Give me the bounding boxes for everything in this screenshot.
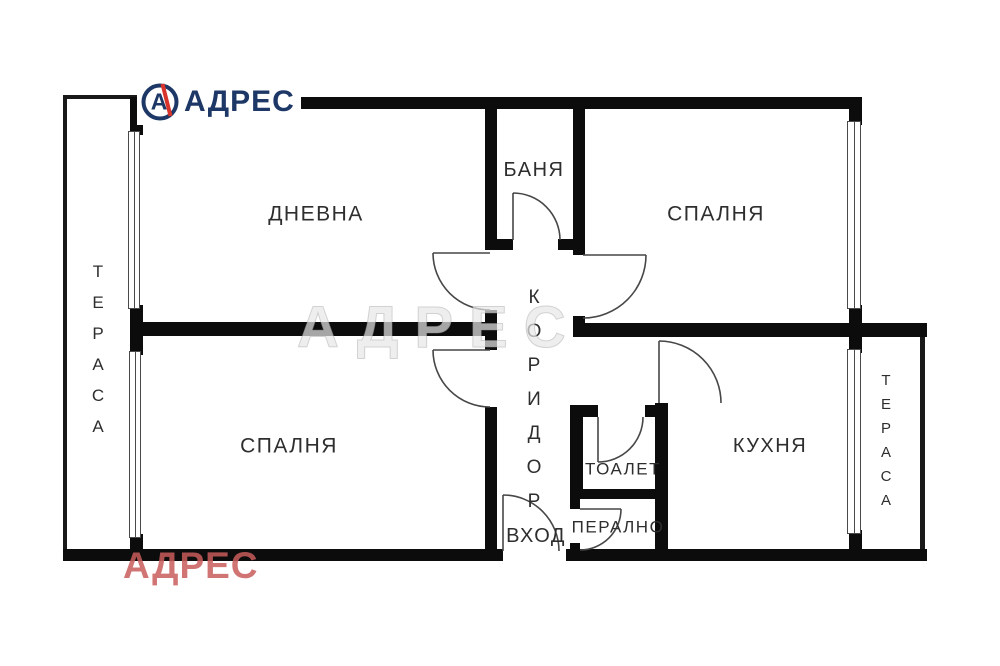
watermark-bottom-left: АДРЕС	[123, 545, 259, 587]
room-label-bathroom: БАНЯ	[504, 160, 565, 180]
room-label-living: ДНЕВНА	[268, 204, 364, 225]
room-label-entrance: ВХОД	[506, 526, 566, 546]
room-label-toilet: ТОАЛЕТ	[585, 461, 661, 478]
room-label-terrace-right: ТЕРАСА	[879, 372, 894, 516]
agency-logo-text: АДРЕС	[184, 85, 295, 119]
door-bathroom	[513, 193, 560, 240]
door-toilet	[598, 417, 643, 462]
watermark-center: АДРЕС	[297, 294, 582, 361]
door-kitchen	[659, 341, 721, 403]
agency-logo-icon: А	[139, 81, 181, 123]
room-label-terrace-left: ТЕРАСА	[90, 262, 107, 448]
agency-logo: А АДРЕС	[137, 79, 301, 125]
room-label-laundry: ПЕРАЛНО	[572, 519, 665, 536]
room-label-bedroom-bottom: СПАЛНЯ	[240, 436, 338, 457]
floor-plan: ДНЕВНА БАНЯ СПАЛНЯ СПАЛНЯ КУХНЯ ТОАЛЕТ П…	[0, 0, 1000, 666]
room-label-bedroom-top: СПАЛНЯ	[667, 204, 765, 225]
room-label-kitchen: КУХНЯ	[733, 436, 807, 456]
door-bedroom-top	[583, 255, 646, 318]
